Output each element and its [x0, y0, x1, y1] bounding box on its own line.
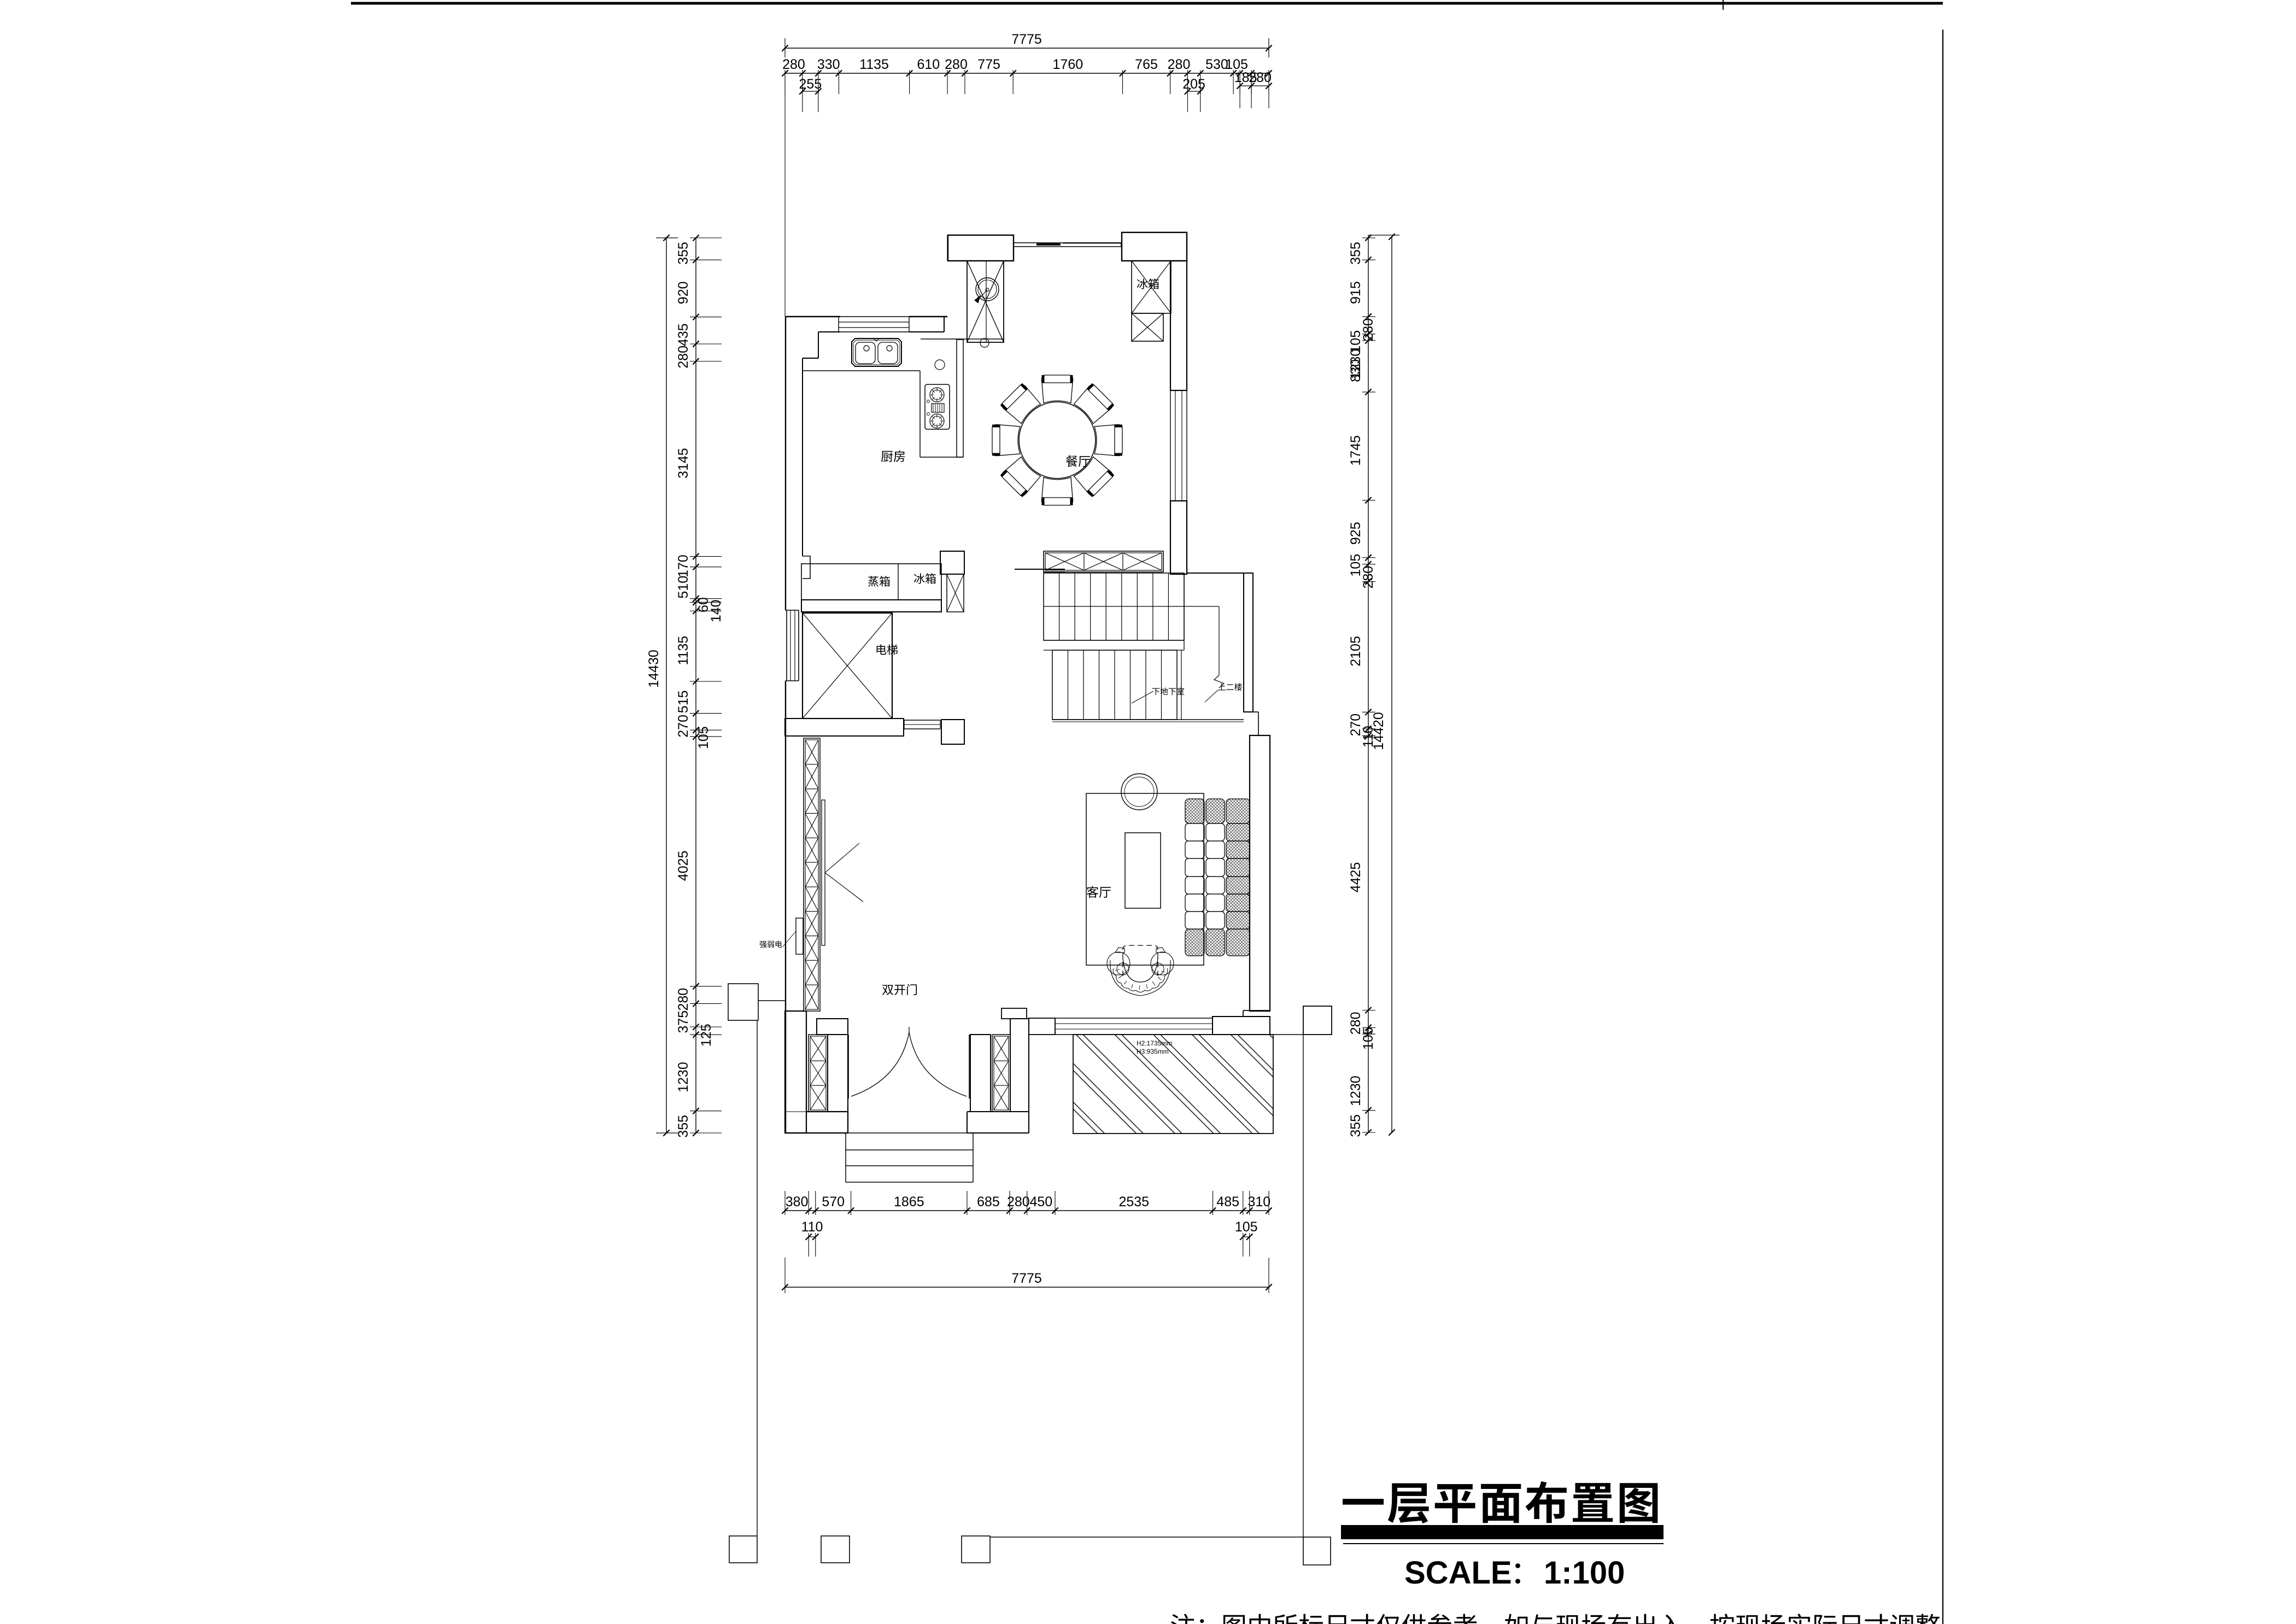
svg-text:205: 205 — [1182, 77, 1205, 92]
svg-text:685: 685 — [977, 1194, 1000, 1210]
svg-text:7775: 7775 — [1011, 32, 1042, 47]
svg-text:765: 765 — [1135, 57, 1158, 72]
svg-text:7775: 7775 — [1011, 1271, 1042, 1286]
svg-text:255: 255 — [799, 77, 822, 92]
svg-text:435: 435 — [676, 323, 691, 346]
svg-text:515: 515 — [676, 690, 691, 713]
svg-text:3145: 3145 — [676, 448, 691, 478]
svg-text:4425: 4425 — [1348, 862, 1363, 893]
svg-text:1135: 1135 — [859, 57, 889, 72]
svg-text:125: 125 — [699, 1024, 714, 1047]
svg-text:1745: 1745 — [1348, 435, 1363, 466]
svg-text:H2:1735mm: H2:1735mm — [1137, 1039, 1172, 1047]
svg-text:280: 280 — [1361, 566, 1376, 589]
svg-text:570: 570 — [822, 1194, 845, 1210]
svg-text:280: 280 — [945, 57, 968, 72]
svg-text:280: 280 — [1249, 70, 1272, 85]
svg-text:105: 105 — [1235, 1219, 1258, 1235]
svg-text:H3:935mm: H3:935mm — [1137, 1048, 1169, 1055]
svg-text:105: 105 — [696, 726, 711, 749]
svg-text:380: 380 — [786, 1194, 809, 1210]
svg-text:485: 485 — [1216, 1194, 1239, 1210]
svg-text:450: 450 — [1030, 1194, 1053, 1210]
svg-text:355: 355 — [676, 242, 691, 265]
svg-text:355: 355 — [1348, 242, 1363, 265]
svg-text:280: 280 — [1168, 57, 1191, 72]
svg-text:1230: 1230 — [1348, 349, 1363, 379]
svg-text:280: 280 — [676, 988, 691, 1011]
svg-text:2535: 2535 — [1118, 1194, 1149, 1210]
svg-text:925: 925 — [1348, 522, 1363, 545]
svg-text:14420: 14420 — [1371, 712, 1386, 750]
svg-text:170: 170 — [676, 554, 691, 577]
svg-text:105: 105 — [1361, 1027, 1376, 1050]
svg-text:110: 110 — [801, 1219, 823, 1235]
svg-text:355: 355 — [1348, 1114, 1363, 1137]
svg-text:1230: 1230 — [1348, 1076, 1363, 1106]
svg-text:330: 330 — [817, 57, 840, 72]
svg-text:1865: 1865 — [894, 1194, 924, 1210]
svg-text:775: 775 — [977, 57, 1000, 72]
svg-text:SCALE: SCALE — [1404, 1555, 1512, 1591]
svg-text:2105: 2105 — [1348, 636, 1363, 667]
svg-text:310: 310 — [1247, 1194, 1270, 1210]
svg-text:140: 140 — [708, 600, 724, 623]
svg-text:510: 510 — [676, 576, 691, 599]
svg-text:280: 280 — [782, 57, 805, 72]
svg-text:4025: 4025 — [676, 851, 691, 881]
svg-text:920: 920 — [676, 282, 691, 305]
svg-text:1230: 1230 — [676, 1062, 691, 1093]
svg-text:1:100: 1:100 — [1544, 1555, 1625, 1591]
svg-text:270: 270 — [676, 715, 691, 738]
svg-text:1760: 1760 — [1053, 57, 1083, 72]
svg-text:280: 280 — [1007, 1194, 1030, 1210]
svg-text:610: 610 — [917, 57, 940, 72]
svg-text:915: 915 — [1348, 281, 1363, 304]
svg-text:14430: 14430 — [646, 650, 661, 688]
svg-text:355: 355 — [676, 1115, 691, 1138]
svg-text:280: 280 — [676, 346, 691, 369]
svg-text:1135: 1135 — [676, 636, 691, 665]
svg-text:375: 375 — [676, 1010, 691, 1033]
